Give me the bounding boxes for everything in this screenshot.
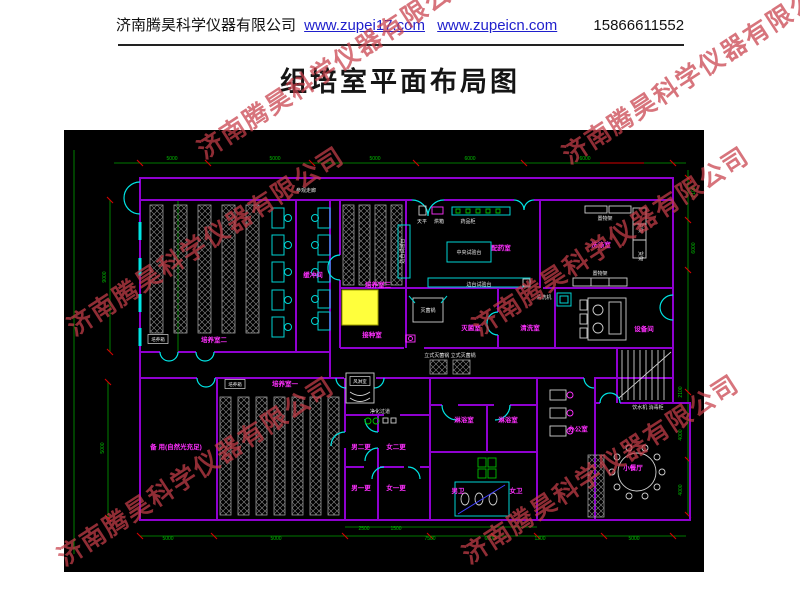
svg-text:淋浴室: 淋浴室	[454, 415, 474, 424]
svg-text:烘箱: 烘箱	[434, 218, 444, 225]
phone-number: 15866611552	[593, 17, 684, 34]
svg-text:缓冲间: 缓冲间	[302, 270, 323, 279]
svg-text:办公室: 办公室	[568, 424, 588, 433]
svg-text:备 用(自然光充足): 备 用(自然光充足)	[149, 442, 202, 451]
svg-text:2100: 2100	[678, 386, 684, 397]
svg-text:培养室三: 培养室三	[365, 280, 392, 289]
svg-text:药品柜: 药品柜	[460, 218, 475, 225]
svg-text:培养室二: 培养室二	[201, 335, 228, 344]
header-divider	[118, 44, 684, 46]
svg-text:5000: 5000	[270, 536, 281, 542]
svg-text:淋浴室: 淋浴室	[498, 415, 518, 424]
dining-table	[609, 445, 665, 499]
svg-text:培养室一: 培养室一	[272, 379, 299, 388]
svg-text:男卫: 男卫	[451, 487, 466, 495]
svg-text:2100: 2100	[691, 186, 697, 197]
svg-text:1500: 1500	[390, 526, 401, 532]
svg-text:中央试验台: 中央试验台	[456, 249, 481, 256]
svg-text:置物架: 置物架	[597, 215, 612, 222]
svg-text:1200: 1200	[534, 536, 545, 542]
svg-text:5000: 5000	[166, 156, 177, 162]
svg-text:女二更: 女二更	[386, 442, 406, 451]
svg-text:清洗机: 清洗机	[536, 294, 551, 301]
svg-text:天平: 天平	[417, 219, 427, 225]
page: 济南腾昊科学仪器有限公司 www.zupei17.com www.zupeicn…	[0, 0, 800, 600]
svg-text:接种室: 接种室	[362, 330, 382, 339]
svg-text:配药室: 配药室	[491, 243, 511, 252]
svg-text:培养箱: 培养箱	[151, 336, 165, 343]
svg-text:9000: 9000	[102, 271, 108, 282]
svg-text:立式灭菌锅 立式灭菌锅: 立式灭菌锅 立式灭菌锅	[424, 352, 475, 359]
link-zupei17[interactable]: www.zupei17.com	[304, 17, 425, 34]
svg-text:风淋室: 风淋室	[353, 378, 367, 385]
svg-text:货架: 货架	[637, 223, 644, 233]
svg-text:5000: 5000	[269, 156, 280, 162]
svg-text:设备间: 设备间	[634, 324, 654, 333]
svg-text:6000: 6000	[464, 156, 475, 162]
svg-text:小餐厅: 小餐厅	[622, 463, 643, 472]
svg-text:饮水机 消毒柜: 饮水机 消毒柜	[632, 404, 663, 411]
svg-text:男二更: 男二更	[350, 443, 371, 451]
svg-text:净化过道: 净化过道	[370, 408, 390, 415]
svg-text:边台试验台: 边台试验台	[399, 238, 406, 263]
svg-text:6000: 6000	[691, 242, 697, 253]
header: 济南腾昊科学仪器有限公司 www.zupei17.com www.zupeicn…	[0, 14, 800, 35]
floor-plan-canvas: 参观走廊培养室二缓冲间培养室三接种室配药室洗涤室灭菌室清洗室设备间培养室一备 用…	[64, 130, 704, 572]
svg-text:清洗室: 清洗室	[520, 323, 540, 332]
svg-text:女一更: 女一更	[386, 483, 406, 492]
link-zupeicn[interactable]: www.zupeicn.com	[437, 17, 557, 34]
svg-text:5000: 5000	[369, 156, 380, 162]
svg-text:培养箱: 培养箱	[228, 381, 242, 388]
svg-text:4000: 4000	[678, 484, 684, 495]
svg-text:女卫: 女卫	[510, 486, 524, 495]
company-name: 济南腾昊科学仪器有限公司	[116, 17, 296, 34]
highlight-box	[342, 290, 378, 325]
svg-text:5000: 5000	[628, 536, 639, 542]
svg-text:7500: 7500	[424, 536, 435, 542]
svg-text:边台试验台: 边台试验台	[466, 281, 491, 288]
stairs	[619, 350, 671, 400]
svg-text:4000: 4000	[678, 429, 684, 440]
svg-text:参观走廊: 参观走廊	[296, 187, 316, 194]
svg-text:男一更: 男一更	[350, 484, 371, 492]
svg-text:6000: 6000	[579, 156, 590, 162]
svg-text:5000: 5000	[162, 536, 173, 542]
svg-text:洗涤室: 洗涤室	[591, 240, 611, 249]
svg-text:置物架: 置物架	[592, 270, 607, 277]
svg-text:2500: 2500	[358, 526, 369, 532]
svg-text:6000: 6000	[484, 536, 495, 542]
svg-text:5000: 5000	[100, 442, 106, 453]
svg-text:灭菌室: 灭菌室	[460, 323, 481, 332]
svg-text:货架: 货架	[637, 251, 644, 261]
svg-text:灭菌锅: 灭菌锅	[420, 307, 435, 314]
page-title: 组培室平面布局图	[0, 60, 800, 99]
